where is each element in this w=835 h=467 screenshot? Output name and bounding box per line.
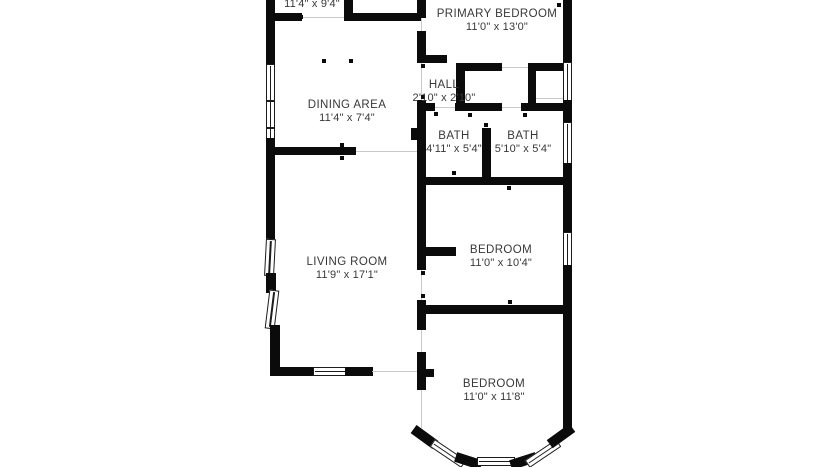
opening-line [302,17,344,18]
room-label-primary-bedroom: PRIMARY BEDROOM 11'0" x 13'0" [437,8,558,34]
room-label-bedroom-bottom: BEDROOM 11'0" x 11'8" [463,378,525,404]
window [265,290,280,330]
wall [417,352,426,390]
wall [417,177,572,185]
door-marker [484,123,488,127]
room-name: BEDROOM [463,378,525,391]
room-dims: 11'4" x 9'4" [284,0,340,11]
room-dims: 11'4" x 7'4" [308,112,387,125]
room-label-top-room: 11'4" x 9'4" [284,0,340,11]
room-dims: 2'10" x 2'10" [413,92,476,105]
wall [417,0,426,18]
door-marker [468,113,472,117]
wall [563,163,572,234]
wall [420,55,447,63]
window [313,367,347,376]
opening-line [502,67,528,68]
wall [274,13,302,21]
bay-corner [547,424,576,449]
room-name: LIVING ROOM [306,256,387,269]
opening-line [435,107,455,108]
room-label-dining-area: DINING AREA 11'4" x 7'4" [308,99,387,125]
room-label-bath-right: BATH 5'10" x 5'4" [495,130,552,156]
room-dims: 4'11" x 5'4" [426,143,482,156]
wall [266,0,275,66]
wall [417,100,426,270]
door-marker [340,156,344,160]
opening-line [372,371,417,372]
fixture-marker [322,59,326,63]
wall [266,147,356,155]
room-dims: 11'0" x 10'4" [470,257,532,270]
wall [563,0,572,64]
opening-line [502,107,521,108]
room-name: BATH [426,130,482,143]
window [563,62,572,103]
floor-plan: 11'4" x 9'4" PRIMARY BEDROOM 11'0" x 13'… [0,0,835,467]
room-name: BATH [495,130,552,143]
opening-line [536,98,563,99]
door-marker [340,143,344,147]
wall [417,305,572,314]
door-marker [421,271,425,275]
room-label-living-room: LIVING ROOM 11'9" x 17'1" [306,256,387,282]
room-name: PRIMARY BEDROOM [437,8,558,21]
room-name: HALL [413,79,476,92]
window [264,239,276,276]
wall [344,13,422,21]
fixture-marker [557,3,561,7]
opening-line [356,151,417,152]
room-label-bedroom-middle: BEDROOM 11'0" x 10'4" [470,244,532,270]
opening-line [421,330,422,352]
room-dims: 11'9" x 17'1" [306,269,387,282]
room-dims: 11'0" x 13'0" [437,21,558,34]
wall [270,367,315,376]
fixture-marker [349,59,353,63]
window-divider [267,100,274,102]
wall [345,367,373,376]
room-name: DINING AREA [308,99,387,112]
opening-line [421,18,422,31]
wall [563,265,572,432]
fixture-marker [452,171,456,175]
room-name: BEDROOM [470,244,532,257]
window [563,122,572,166]
door-marker [421,64,425,68]
door-marker [299,15,303,19]
window [563,232,572,268]
opening-line [421,390,422,428]
fixture-marker [507,186,511,190]
wall [417,247,456,256]
room-dims: 11'0" x 11'8" [463,391,525,404]
room-label-bath-left: BATH 4'11" x 5'4" [426,130,482,156]
fixture-marker [508,300,512,304]
wall [411,128,417,140]
door-marker [523,113,527,117]
wall [426,369,434,377]
room-label-hall: HALL 2'10" x 2'10" [413,79,476,105]
door-marker [421,294,425,298]
room-dims: 5'10" x 5'4" [495,143,552,156]
window-divider [267,127,274,129]
door-marker [434,112,438,116]
